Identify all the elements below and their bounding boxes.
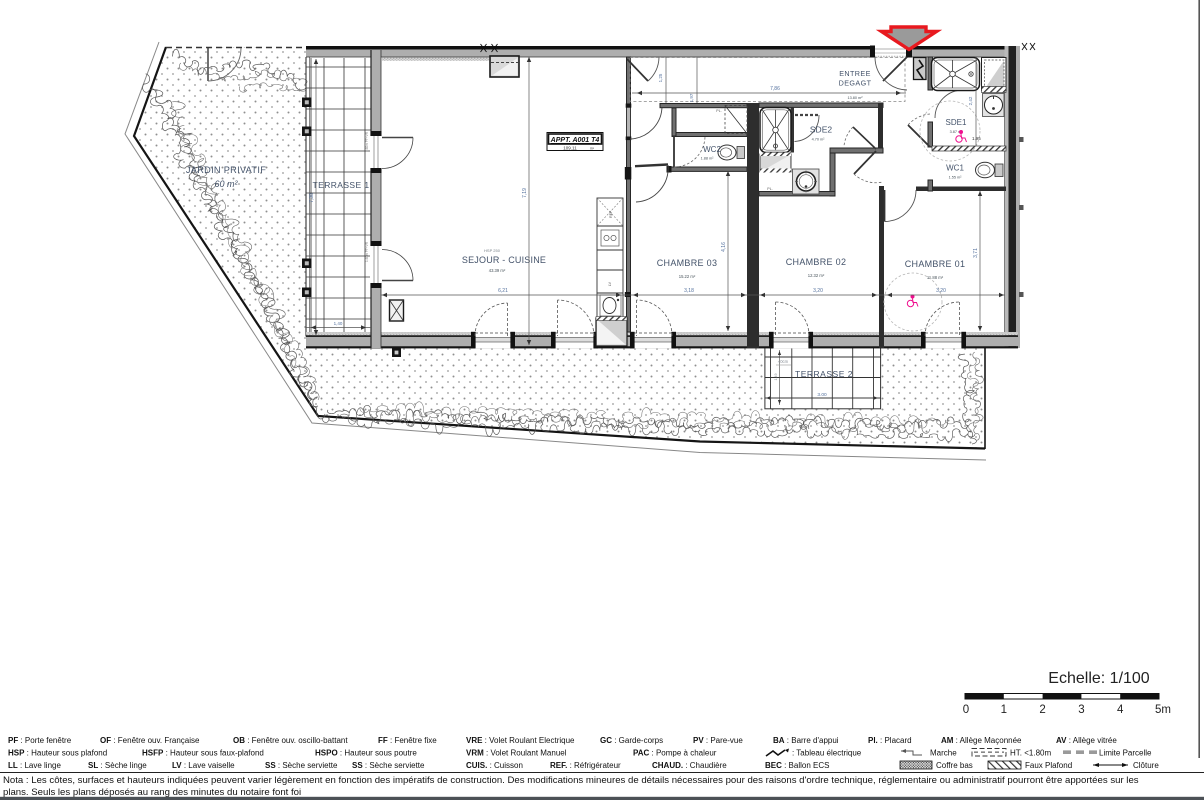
svg-text:3,20: 3,20 bbox=[813, 288, 823, 294]
svg-text:TERRASSE 1: TERRASSE 1 bbox=[313, 180, 370, 190]
svg-text:5m: 5m bbox=[1155, 704, 1171, 716]
svg-text:Nota : Les côtes, surfaces et: Nota : Les côtes, surfaces et hauteurs i… bbox=[3, 775, 1139, 786]
svg-text:SL : Sèche linge: SL : Sèche linge bbox=[88, 761, 147, 770]
svg-text:3.00: 3.00 bbox=[817, 392, 827, 398]
svg-text:6,21: 6,21 bbox=[498, 288, 508, 294]
svg-text:3,71: 3,71 bbox=[973, 248, 979, 258]
svg-text:PV : Pare-vue: PV : Pare-vue bbox=[693, 736, 743, 745]
svg-text:4,16: 4,16 bbox=[721, 242, 727, 252]
svg-text:HSP : Hauteur sous plafond: HSP : Hauteur sous plafond bbox=[8, 749, 107, 758]
svg-text:REF.: REF. bbox=[609, 210, 613, 218]
svg-text:SDE1: SDE1 bbox=[946, 118, 967, 127]
svg-text:LL : Lave linge: LL : Lave linge bbox=[8, 761, 61, 770]
svg-text:1,97: 1,97 bbox=[689, 93, 694, 102]
svg-text:3,20: 3,20 bbox=[936, 288, 946, 294]
svg-text:1,25: 1,25 bbox=[658, 73, 663, 82]
svg-text:7,19: 7,19 bbox=[522, 188, 528, 198]
svg-text:Pl. : Placard: Pl. : Placard bbox=[868, 736, 912, 745]
svg-text:0: 0 bbox=[963, 704, 969, 716]
svg-text:LV : Lave vaiselle: LV : Lave vaiselle bbox=[172, 761, 235, 770]
svg-text:4: 4 bbox=[1117, 704, 1124, 716]
svg-text:DEGAGT: DEGAGT bbox=[839, 79, 872, 88]
svg-text:: Tableau électrique: : Tableau électrique bbox=[792, 749, 862, 758]
svg-text:PAC : Pompe à chaleur: PAC : Pompe à chaleur bbox=[633, 749, 717, 758]
svg-text:SS : Sèche serviette: SS : Sèche serviette bbox=[265, 761, 338, 770]
svg-text:11.88 m²: 11.88 m² bbox=[927, 275, 944, 280]
svg-text:Coffre bas: Coffre bas bbox=[936, 761, 973, 770]
svg-text:Faux Plafond: Faux Plafond bbox=[1025, 761, 1072, 770]
svg-text:≈0cm: ≈0cm bbox=[778, 359, 789, 364]
svg-text:Marche: Marche bbox=[930, 749, 957, 758]
svg-text:CHAMBRE 03: CHAMBRE 03 bbox=[657, 258, 718, 268]
svg-text:AV : Allège vitrée: AV : Allège vitrée bbox=[1056, 736, 1117, 745]
svg-text:2,42: 2,42 bbox=[968, 96, 973, 105]
svg-text:plans. Seuls les plans déposés: plans. Seuls les plans déposés au rang d… bbox=[3, 787, 301, 798]
svg-text:12.32 m²: 12.32 m² bbox=[808, 273, 825, 278]
svg-text:7,86: 7,86 bbox=[770, 86, 780, 92]
svg-text:FF : Fenêtre fixe: FF : Fenêtre fixe bbox=[378, 736, 437, 745]
svg-text:OF : Fenêtre ouv. Française: OF : Fenêtre ouv. Française bbox=[100, 736, 200, 745]
svg-text:BA : Barre d'appui: BA : Barre d'appui bbox=[773, 736, 839, 745]
svg-text:HSPO : Hauteur sous poutre: HSPO : Hauteur sous poutre bbox=[315, 749, 417, 758]
svg-text:PL.: PL. bbox=[767, 187, 772, 191]
svg-text:VRM : Volet Roulant Manuel: VRM : Volet Roulant Manuel bbox=[466, 749, 567, 758]
svg-text:SS : Sèche serviette: SS : Sèche serviette bbox=[352, 761, 425, 770]
svg-text:1.60m PF+VR: 1.60m PF+VR bbox=[365, 241, 369, 262]
svg-text:1.95: 1.95 bbox=[972, 136, 981, 141]
svg-text:3,18: 3,18 bbox=[684, 288, 694, 294]
svg-text:GC : Garde-corps: GC : Garde-corps bbox=[600, 736, 663, 745]
svg-text:1.88 m²: 1.88 m² bbox=[701, 157, 715, 161]
svg-text:PL.: PL. bbox=[716, 109, 721, 113]
svg-text:4.70 m²: 4.70 m² bbox=[812, 138, 826, 142]
svg-text:PF : Porte fenêtre: PF : Porte fenêtre bbox=[8, 736, 72, 745]
svg-text:60 m²: 60 m² bbox=[214, 179, 238, 189]
svg-text:Clôture: Clôture bbox=[1133, 761, 1159, 770]
svg-text:OB : Fenêtre ouv. oscillo-batt: OB : Fenêtre ouv. oscillo-battant bbox=[233, 736, 348, 745]
svg-text:Echelle: 1/100: Echelle: 1/100 bbox=[1048, 670, 1150, 687]
svg-text:AM : Allège Maçonnée: AM : Allège Maçonnée bbox=[941, 736, 1022, 745]
svg-text:VRE : Volet Roulant Electrique: VRE : Volet Roulant Electrique bbox=[466, 736, 575, 745]
svg-text:CHAMBRE 01: CHAMBRE 01 bbox=[905, 259, 966, 269]
svg-text:109.11: 109.11 bbox=[563, 146, 577, 151]
svg-text:1,49: 1,49 bbox=[774, 374, 778, 381]
svg-text:REF. : Réfrigérateur: REF. : Réfrigérateur bbox=[550, 761, 621, 770]
svg-text:CHAMBRE 02: CHAMBRE 02 bbox=[786, 257, 847, 267]
svg-text:2: 2 bbox=[1039, 704, 1045, 716]
svg-text:1,40: 1,40 bbox=[334, 321, 343, 326]
svg-text:HSFP : Hauteur sous faux-plafo: HSFP : Hauteur sous faux-plafond bbox=[142, 749, 264, 758]
svg-text:HSP 250: HSP 250 bbox=[484, 248, 501, 253]
svg-text:HT. <1.80m: HT. <1.80m bbox=[1010, 749, 1051, 758]
svg-text:3: 3 bbox=[1078, 704, 1084, 716]
svg-text:1: 1 bbox=[1001, 704, 1007, 716]
svg-text:LV: LV bbox=[608, 281, 612, 286]
svg-text:WC2: WC2 bbox=[703, 145, 721, 154]
svg-text:CHAUD. : Chaudière: CHAUD. : Chaudière bbox=[652, 761, 727, 770]
svg-text:1.60m PF+VR: 1.60m PF+VR bbox=[365, 131, 369, 152]
svg-text:BEC : Ballon ECS: BEC : Ballon ECS bbox=[765, 761, 829, 770]
svg-text:43.39 m²: 43.39 m² bbox=[489, 268, 506, 273]
svg-text:WC1: WC1 bbox=[946, 164, 964, 173]
svg-text:SDE2: SDE2 bbox=[810, 125, 832, 135]
svg-text:JARDIN PRIVATIF: JARDIN PRIVATIF bbox=[186, 165, 266, 175]
svg-text:7,38: 7,38 bbox=[309, 193, 315, 203]
svg-text:CUIS. : Cuisson: CUIS. : Cuisson bbox=[466, 761, 523, 770]
svg-text:APPT. A001 T4: APPT. A001 T4 bbox=[550, 137, 600, 144]
svg-text:TERRASSE 2: TERRASSE 2 bbox=[795, 369, 853, 379]
svg-text:SEJOUR - CUISINE: SEJOUR - CUISINE bbox=[462, 255, 546, 265]
svg-text:1.55 m²: 1.55 m² bbox=[949, 176, 963, 180]
svg-text:ENTREE: ENTREE bbox=[839, 69, 871, 78]
svg-text:Limite Parcelle: Limite Parcelle bbox=[1099, 749, 1152, 758]
svg-text:15.22 m²: 15.22 m² bbox=[679, 274, 696, 279]
svg-text:13.80 m²: 13.80 m² bbox=[848, 96, 864, 100]
